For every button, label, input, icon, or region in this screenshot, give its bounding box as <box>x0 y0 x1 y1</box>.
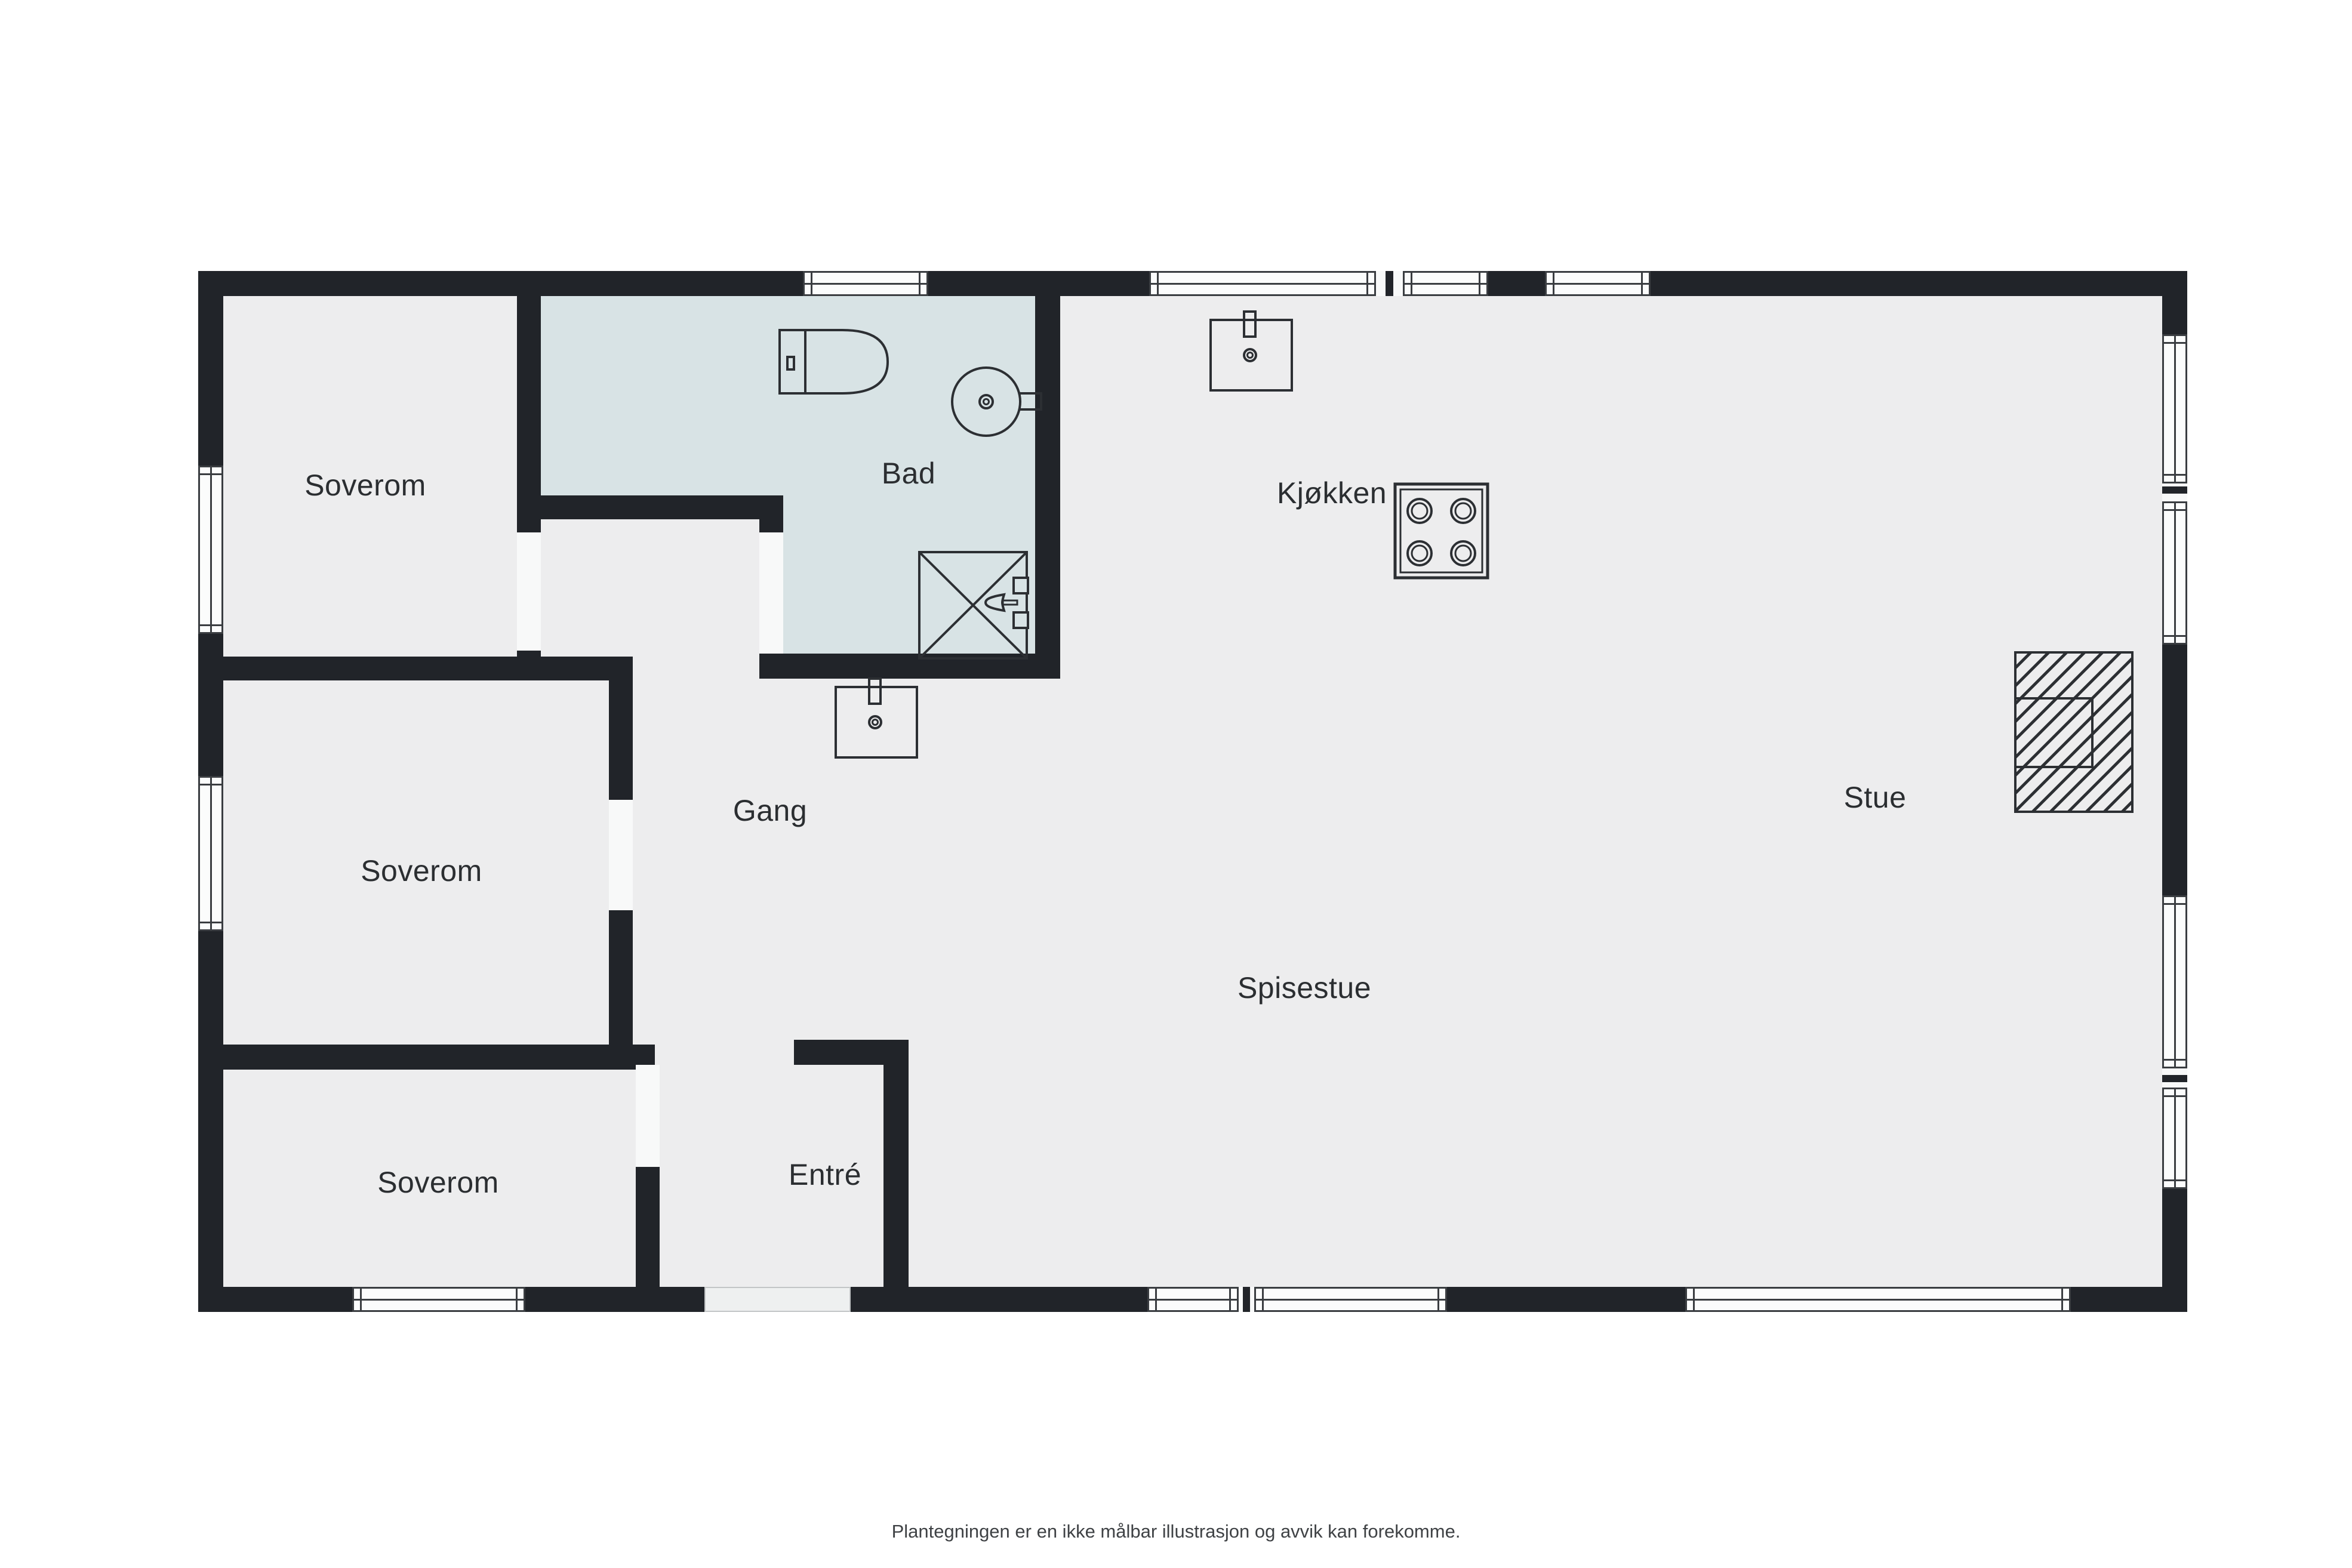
room-label-kjokken: Kjøkken <box>1277 476 1387 510</box>
door-opening <box>517 532 541 651</box>
window <box>2162 501 2187 645</box>
window-mullion <box>2162 486 2187 494</box>
room-label-soverom-1: Soverom <box>304 468 426 503</box>
window-mullion <box>1243 1287 1250 1312</box>
window <box>1254 1287 1447 1312</box>
door-opening <box>636 1065 660 1167</box>
wall <box>198 1045 655 1070</box>
shower-icon <box>913 548 1033 664</box>
fireplace-icon <box>2014 651 2134 813</box>
wall <box>198 657 633 680</box>
wall <box>609 680 633 800</box>
floorplan-canvas: SoveromBadKjøkkenSoveromGangStueSpisestu… <box>0 0 2352 1568</box>
room-label-gang: Gang <box>733 793 807 828</box>
door-opening <box>759 532 783 654</box>
door-opening <box>609 800 633 910</box>
entrance-door <box>704 1287 851 1312</box>
window <box>198 466 223 634</box>
window <box>2162 1088 2187 1189</box>
toilet-icon <box>778 328 891 395</box>
room-label-spisestue: Spisestue <box>1237 971 1371 1005</box>
window <box>2162 895 2187 1068</box>
round-sink-icon <box>948 362 1043 441</box>
window <box>1545 271 1651 296</box>
window <box>198 776 223 931</box>
window <box>1403 271 1488 296</box>
room-label-soverom-2: Soverom <box>361 854 482 888</box>
room-label-bad: Bad <box>882 456 935 491</box>
room-label-soverom-3: Soverom <box>377 1165 499 1200</box>
disclaimer-text: Plantegningen er en ikke målbar illustra… <box>0 1521 2352 1542</box>
wall <box>609 910 633 1045</box>
window <box>803 271 928 296</box>
window <box>1685 1287 2071 1312</box>
window <box>2162 334 2187 483</box>
stove-icon <box>1391 481 1491 581</box>
window <box>1149 271 1376 296</box>
wall <box>759 495 783 532</box>
window-mullion <box>1386 271 1393 296</box>
room-label-entre: Entré <box>789 1157 861 1192</box>
square-sink-icon <box>833 676 920 760</box>
wall <box>883 1040 909 1287</box>
window <box>1147 1287 1239 1312</box>
wall <box>517 495 783 519</box>
window-mullion <box>2162 1075 2187 1082</box>
room-label-stue: Stue <box>1844 780 1907 815</box>
square-sink-icon <box>1208 309 1295 393</box>
wall <box>636 1167 660 1287</box>
window <box>352 1287 525 1312</box>
wall <box>1035 296 1060 679</box>
